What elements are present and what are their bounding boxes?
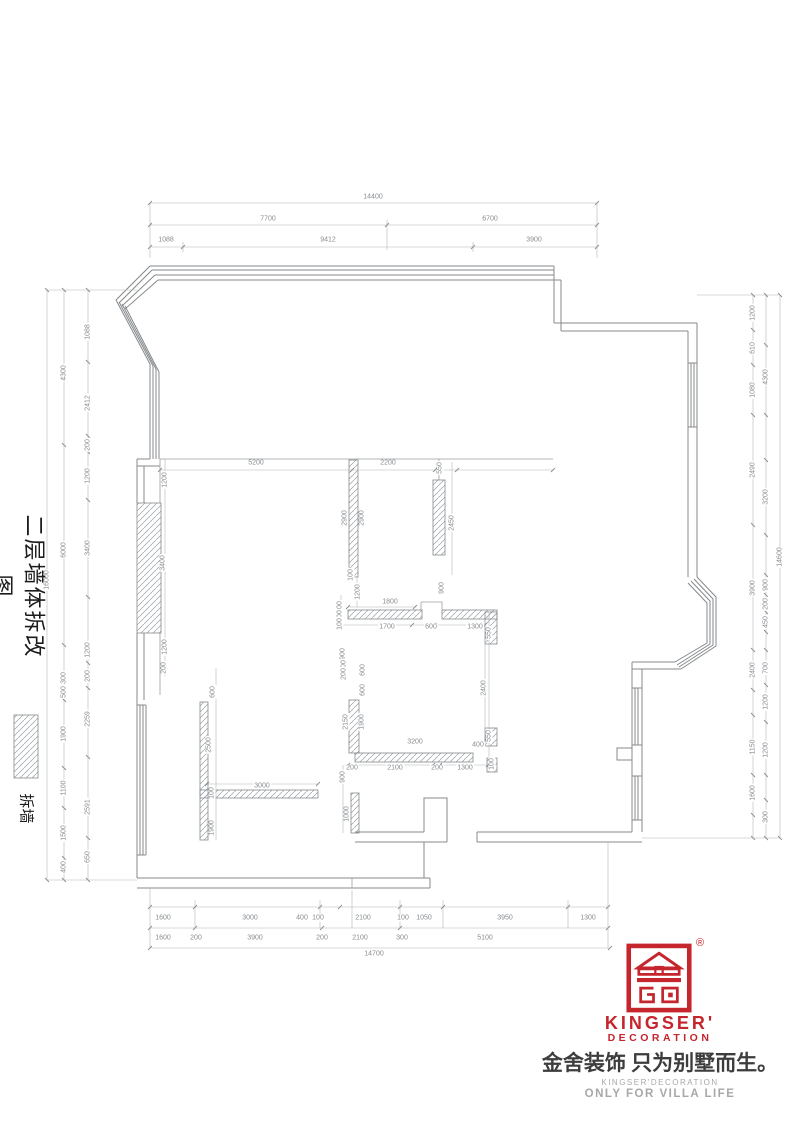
logo-tagline: ONLY FOR VILLA LIFE	[540, 1088, 780, 1100]
kingser-logo-icon	[626, 943, 692, 1013]
registered-trademark-icon: ®	[696, 937, 704, 949]
logo-slogan-cn: 金舍装饰 只为别墅而生。	[505, 1047, 800, 1077]
logo-brand-subtext: DECORATION	[540, 1032, 780, 1044]
floorplan-sheet: 1440077006700108894123900160030004001002…	[0, 0, 800, 1131]
demolition-walls	[137, 460, 497, 840]
logo-sub-en: KINGSER'DECORATION	[540, 1078, 780, 1087]
demolition-legend-label: 拆墙	[17, 781, 38, 837]
drawing-title: 二层墙体拆改图	[0, 507, 52, 667]
logo-brand-text: KINGSER'	[540, 1013, 780, 1034]
demolition-legend-swatch	[14, 715, 38, 778]
